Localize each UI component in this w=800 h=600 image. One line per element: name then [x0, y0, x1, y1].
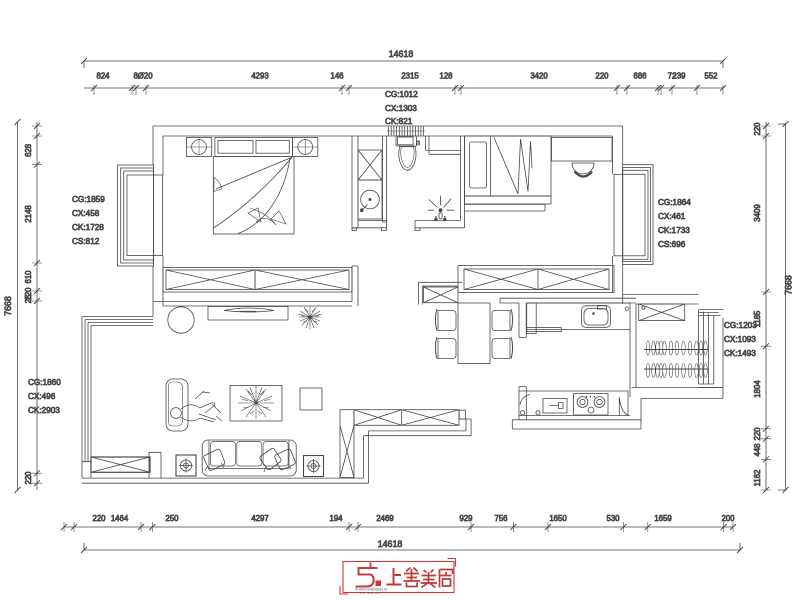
svg-text:CX:496: CX:496 — [28, 392, 56, 401]
svg-text:552: 552 — [704, 72, 717, 81]
svg-text:220: 220 — [24, 471, 33, 485]
svg-text:146: 146 — [330, 72, 343, 81]
svg-text:1804: 1804 — [753, 380, 762, 398]
svg-text:239: 239 — [672, 72, 685, 81]
svg-text:4297: 4297 — [251, 514, 268, 523]
svg-text:628: 628 — [24, 144, 33, 157]
svg-text:CX:461: CX:461 — [658, 212, 686, 221]
svg-text:CS:812: CS:812 — [72, 237, 100, 246]
svg-text:3420: 3420 — [530, 72, 548, 81]
svg-text:1464: 1464 — [111, 514, 129, 523]
svg-text:756: 756 — [494, 514, 507, 523]
svg-text:7668: 7668 — [3, 296, 13, 316]
svg-text:14618: 14618 — [378, 539, 403, 549]
svg-text:CG:1859: CG:1859 — [72, 195, 105, 204]
svg-text:128: 128 — [439, 72, 452, 81]
svg-text:2315: 2315 — [401, 72, 419, 81]
svg-text:CX:458: CX:458 — [72, 209, 100, 218]
svg-text:2148: 2148 — [24, 205, 33, 222]
svg-text:CG:1860: CG:1860 — [28, 378, 61, 387]
svg-text:530: 530 — [606, 514, 620, 523]
svg-text:25: 25 — [24, 294, 33, 303]
svg-text:CS:696: CS:696 — [658, 240, 686, 249]
svg-text:CK:1493: CK:1493 — [724, 349, 756, 358]
svg-text:220: 220 — [753, 122, 762, 136]
svg-text:448: 448 — [753, 443, 762, 456]
svg-text:8Ø20: 8Ø20 — [133, 72, 153, 81]
svg-text:250: 250 — [165, 514, 179, 523]
svg-text:1650: 1650 — [549, 514, 567, 523]
svg-text:929: 929 — [459, 514, 472, 523]
svg-text:CG:1012: CG:1012 — [385, 90, 418, 99]
svg-text:1659: 1659 — [654, 514, 671, 523]
svg-text:CG:1864: CG:1864 — [658, 198, 691, 207]
svg-text:194: 194 — [329, 514, 343, 523]
svg-text:3409: 3409 — [753, 204, 762, 221]
svg-text:14618: 14618 — [389, 49, 414, 59]
svg-text:4293: 4293 — [251, 72, 268, 81]
svg-text:CX:1303: CX:1303 — [385, 104, 417, 113]
svg-text:686: 686 — [633, 72, 646, 81]
svg-text:200: 200 — [721, 514, 735, 523]
svg-text:220: 220 — [92, 514, 106, 523]
svg-text:CX:1093: CX:1093 — [724, 335, 756, 344]
svg-text:CK:1728: CK:1728 — [72, 223, 104, 232]
svg-text:220: 220 — [595, 72, 609, 81]
svg-text:CG:1203: CG:1203 — [724, 321, 757, 330]
svg-text:610: 610 — [24, 270, 33, 284]
svg-text:SS MEIJU: SS MEIJU — [360, 591, 381, 595]
svg-text:CK:2903: CK:2903 — [28, 406, 60, 415]
svg-text:7668: 7668 — [784, 275, 794, 295]
svg-text:CK:1733: CK:1733 — [658, 226, 690, 235]
svg-text:CK:821: CK:821 — [385, 117, 413, 126]
svg-text:2469: 2469 — [376, 514, 393, 523]
svg-text:824: 824 — [96, 72, 110, 81]
svg-text:1162: 1162 — [753, 470, 762, 487]
svg-text:220: 220 — [753, 427, 762, 441]
